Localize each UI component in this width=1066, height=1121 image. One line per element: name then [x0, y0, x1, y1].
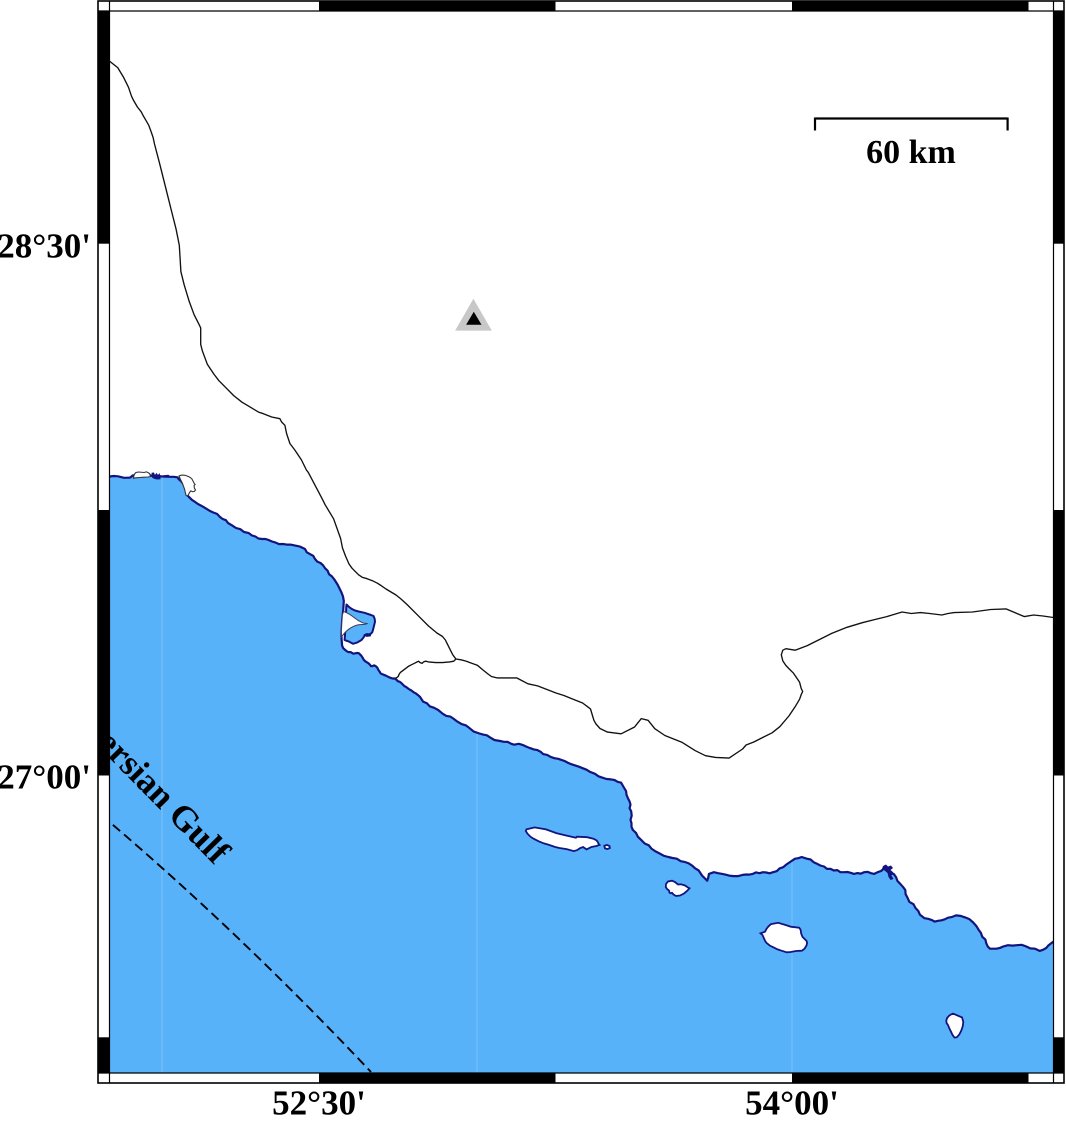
svg-text:60 km: 60 km — [866, 134, 956, 171]
svg-text:27°00': 27°00' — [0, 758, 91, 797]
svg-text:28°30': 28°30' — [0, 227, 91, 266]
svg-text:52°30': 52°30' — [272, 1084, 366, 1121]
svg-text:54°00': 54°00' — [745, 1084, 839, 1121]
